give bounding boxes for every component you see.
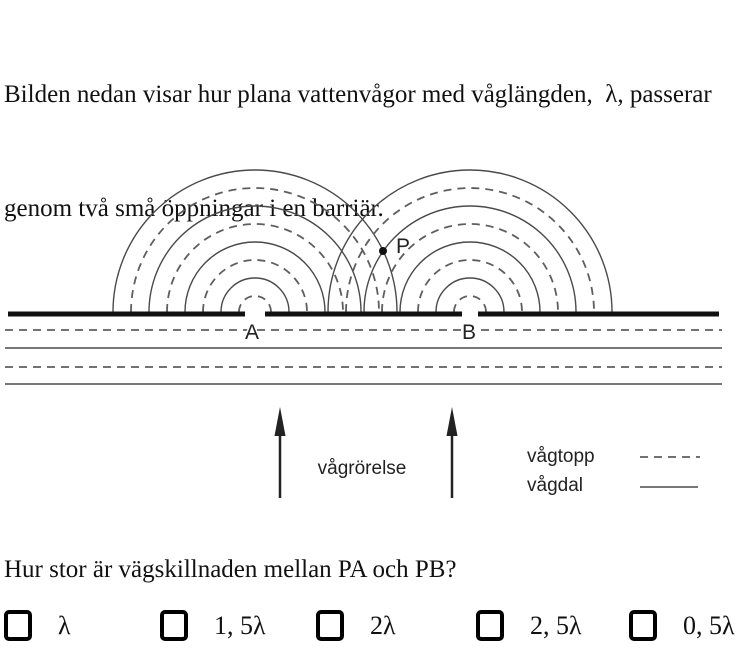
answer-options: λ 1, 5λ 2λ 2, 5λ 0, 5λ xyxy=(0,610,754,650)
exam-page: Bilden nedan visar hur plana vattenvågor… xyxy=(0,0,754,672)
wave-motion-label: vågrörelse xyxy=(318,458,407,479)
wave-trough-arc xyxy=(185,242,325,312)
wave-crest-arc xyxy=(167,224,343,312)
wave-trough-arc xyxy=(328,170,612,312)
checkbox-option-1[interactable] xyxy=(4,610,32,641)
option-2-label: 1, 5λ xyxy=(214,611,266,641)
answer-option-2: 1, 5λ xyxy=(160,610,266,641)
answer-option-1: λ xyxy=(4,610,71,641)
answer-option-4: 2, 5λ xyxy=(476,610,582,641)
option-1-label: λ xyxy=(58,611,71,641)
legend-crest-label: vågtopp xyxy=(527,446,595,467)
wave-crest-arc xyxy=(239,296,271,312)
answer-option-5: 0, 5λ xyxy=(629,610,735,641)
question-text: Hur stor är vägskillnaden mellan PA och … xyxy=(4,556,744,584)
wave-trough-arc xyxy=(400,242,540,312)
wave-crest-arc xyxy=(418,260,522,312)
wave-crest-arc xyxy=(454,296,486,312)
option-5-label: 0, 5λ xyxy=(683,611,735,641)
wave-motion-arrow-head xyxy=(447,407,458,436)
point-p-label: P xyxy=(396,235,410,258)
checkbox-option-3[interactable] xyxy=(316,610,344,641)
wave-motion-arrow-head xyxy=(275,407,286,436)
wave-trough-arc xyxy=(436,278,504,312)
answer-option-3: 2λ xyxy=(316,610,396,641)
checkbox-option-4[interactable] xyxy=(476,610,504,641)
legend-trough-label: vågdal xyxy=(527,475,583,496)
checkbox-option-2[interactable] xyxy=(160,610,188,641)
opening-a-label: A xyxy=(245,321,259,344)
point-p-dot xyxy=(379,247,387,255)
wave-crest-arc xyxy=(203,260,307,312)
option-3-label: 2λ xyxy=(370,611,396,641)
wave-geometry xyxy=(5,170,722,498)
option-4-label: 2, 5λ xyxy=(530,611,582,641)
wave-trough-arc xyxy=(221,278,289,312)
checkbox-option-5[interactable] xyxy=(629,610,657,641)
opening-b-label: B xyxy=(462,321,476,344)
wave-trough-arc xyxy=(113,170,397,312)
